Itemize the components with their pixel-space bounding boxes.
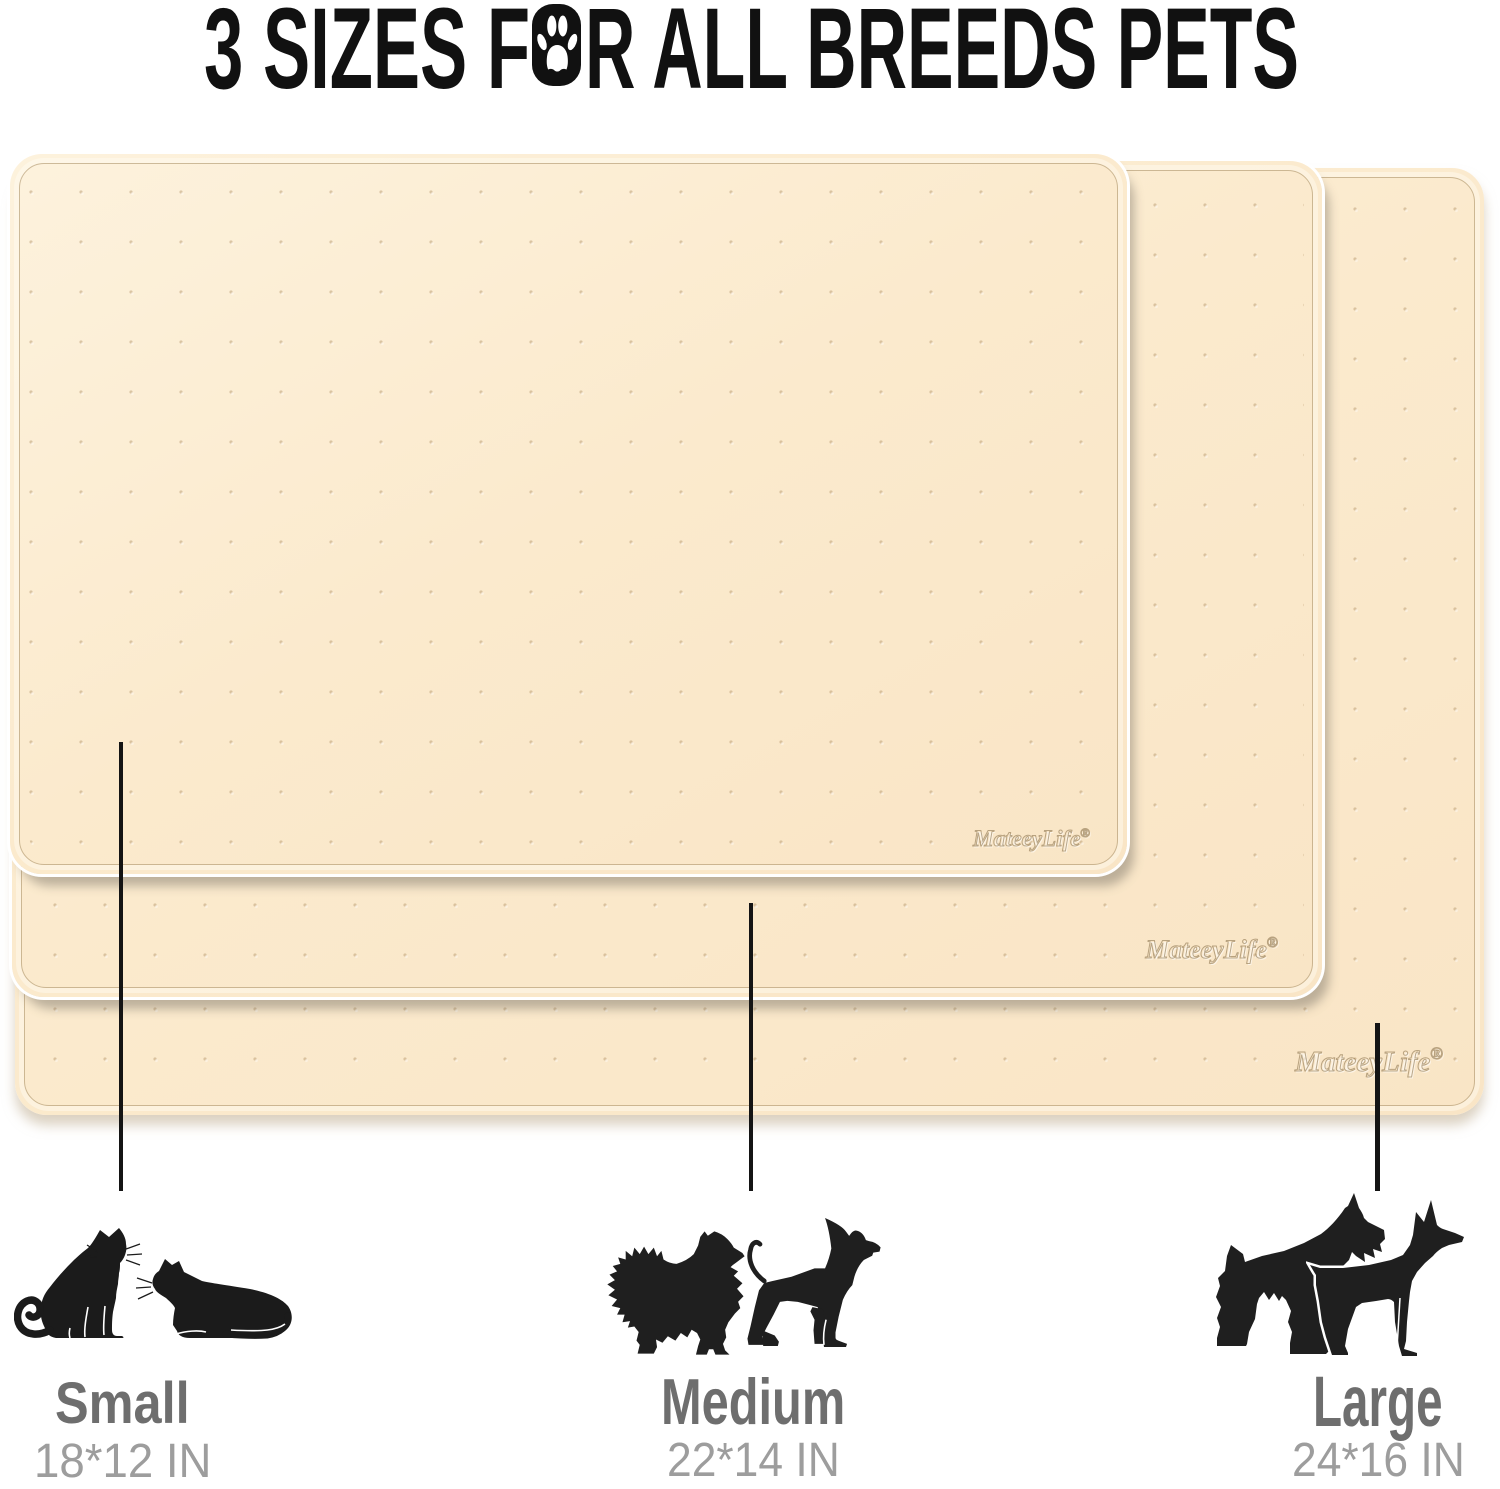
svg-text:R ALL BREEDS PETS: R ALL BREEDS PETS bbox=[585, 0, 1299, 113]
svg-text:3 SIZES F: 3 SIZES F bbox=[204, 0, 530, 113]
